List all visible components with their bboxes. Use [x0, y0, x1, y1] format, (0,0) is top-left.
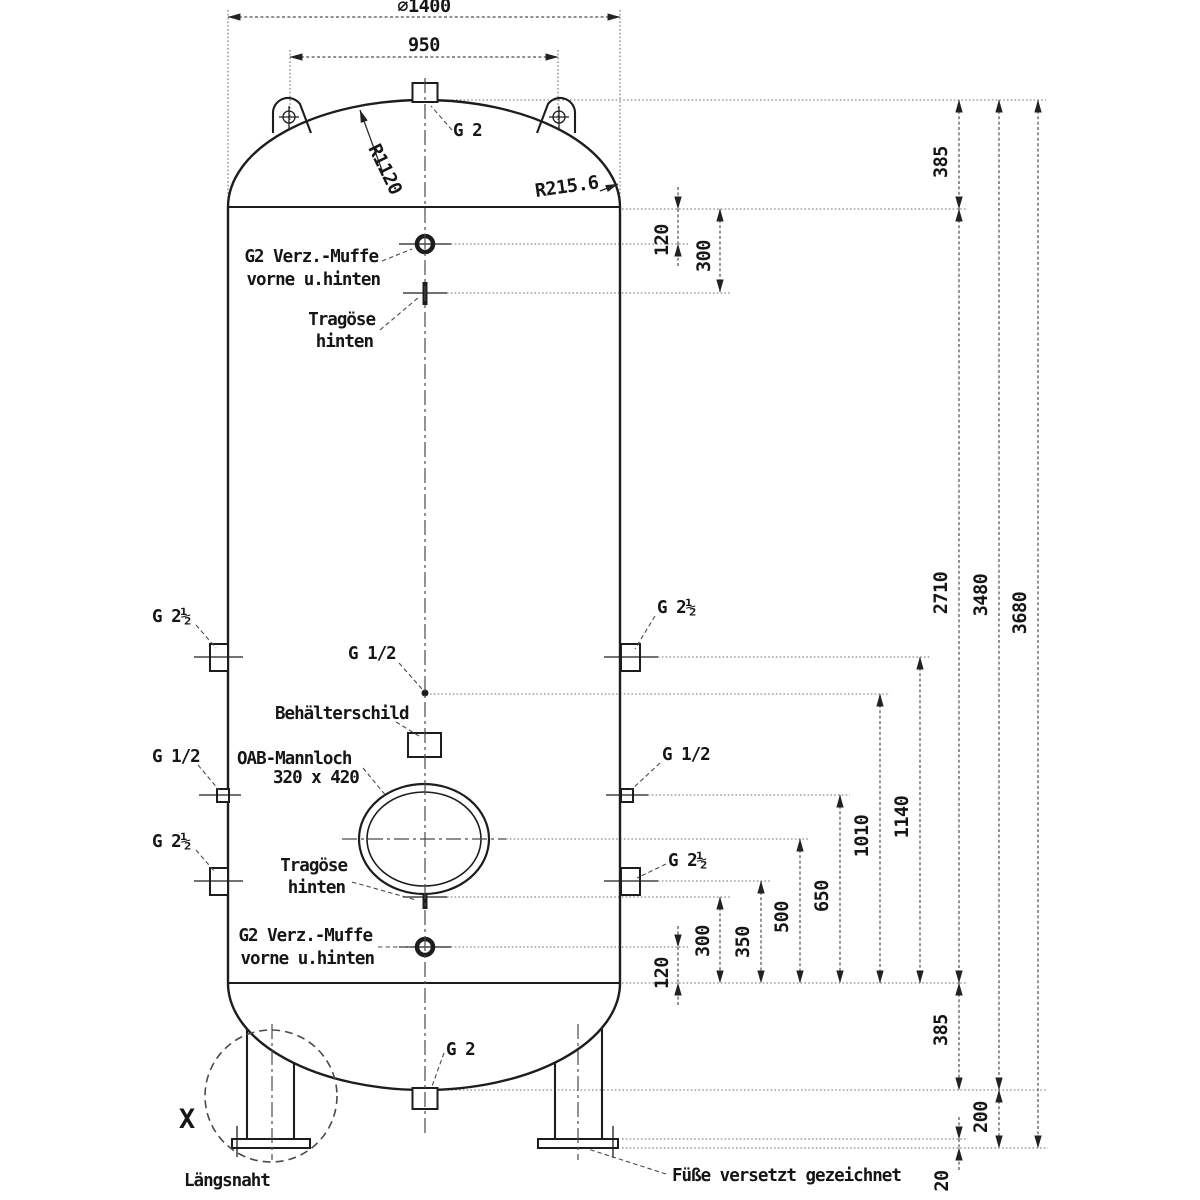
dim-500: 500: [772, 901, 793, 933]
dim-crown-radius: R1120: [364, 141, 406, 198]
label-right-upper-nozzle: G 2½: [657, 598, 696, 618]
label-top-nozzle: G 2: [453, 121, 482, 141]
leader: [196, 625, 216, 648]
pressure-vessel-drawing: ⌀1400 950 R1120 R215.6 120 300 385 2710 …: [0, 0, 1200, 1200]
extension-lines: [228, 10, 1048, 1148]
dim-2710: 2710: [931, 571, 952, 614]
label-muffe-top-line2: vorne u.hinten: [246, 270, 380, 290]
label-right-lower-nozzle: G 2½: [668, 851, 707, 871]
dim-300-bottom: 300: [693, 925, 714, 957]
knuckle-radius-arrow: [600, 184, 618, 191]
dim-385-top: 385: [931, 146, 952, 178]
dim-lug-spacing: 950: [408, 35, 440, 56]
label-seam: Längsnaht: [184, 1171, 270, 1191]
leader: [431, 106, 452, 130]
label-manhole-line2: 320 x 420: [273, 768, 359, 788]
label-mid-g12: G 1/2: [348, 644, 396, 664]
dim-200: 200: [971, 1101, 992, 1133]
label-feet-note: Füße versetzt gezeichnet: [672, 1166, 901, 1186]
leader: [380, 297, 419, 330]
leader: [399, 663, 422, 689]
left-base-plate: [232, 1139, 310, 1148]
dim-650: 650: [812, 880, 833, 912]
label-lug-bottom-line1: Tragöse: [280, 856, 347, 876]
leader: [198, 765, 219, 790]
label-left-upper-nozzle: G 2½: [152, 607, 191, 627]
label-right-mid-nozzle: G 1/2: [662, 745, 710, 765]
dim-120-top: 120: [652, 224, 673, 256]
label-lug-top-line2: hinten: [316, 332, 374, 352]
label-lug-top-line1: Tragöse: [308, 310, 375, 330]
dim-350: 350: [733, 926, 754, 958]
label-left-mid-nozzle: G 1/2: [152, 747, 200, 767]
dimension-lines: [228, 17, 1038, 1170]
leader: [637, 864, 666, 878]
leader: [363, 768, 387, 797]
dim-1140: 1140: [892, 795, 913, 838]
leader: [631, 763, 660, 790]
dim-diameter: ⌀1400: [397, 0, 451, 17]
dim-120-bottom: 120: [652, 957, 673, 989]
leader: [635, 616, 655, 649]
label-muffe-top-line1: G2 Verz.-Muffe: [244, 247, 378, 267]
dim-1010: 1010: [852, 814, 873, 857]
label-nameplate: Behälterschild: [275, 704, 409, 724]
label-bottom-nozzle: G 2: [446, 1040, 475, 1060]
leader: [588, 1149, 666, 1174]
bottom-head: [228, 983, 620, 1090]
dimension-texts: ⌀1400 950 R1120 R215.6 120 300 385 2710 …: [364, 0, 1031, 1192]
technical-drawing-sheet: ⌀1400 950 R1120 R215.6 120 300 385 2710 …: [0, 0, 1200, 1200]
dim-3480: 3480: [971, 573, 992, 616]
leader: [431, 1053, 444, 1089]
label-lug-bottom-line2: hinten: [288, 878, 346, 898]
dim-3680: 3680: [1010, 591, 1031, 634]
leader: [382, 249, 412, 261]
label-manhole-line1: OAB-Mannloch: [237, 749, 352, 769]
dim-300-top: 300: [694, 240, 715, 272]
label-muffe-bottom-line1: G2 Verz.-Muffe: [238, 926, 372, 946]
label-left-lower-nozzle: G 2½: [152, 832, 191, 852]
centerlines: [272, 78, 578, 1160]
dim-385-bottom: 385: [931, 1014, 952, 1046]
leader: [196, 850, 215, 872]
label-detail-x: X: [179, 1104, 195, 1135]
dim-20: 20: [932, 1170, 953, 1192]
dim-knuckle-radius: R215.6: [534, 172, 600, 202]
label-muffe-bottom-line2: vorne u.hinten: [240, 949, 374, 969]
lifting-lugs: [273, 98, 575, 133]
